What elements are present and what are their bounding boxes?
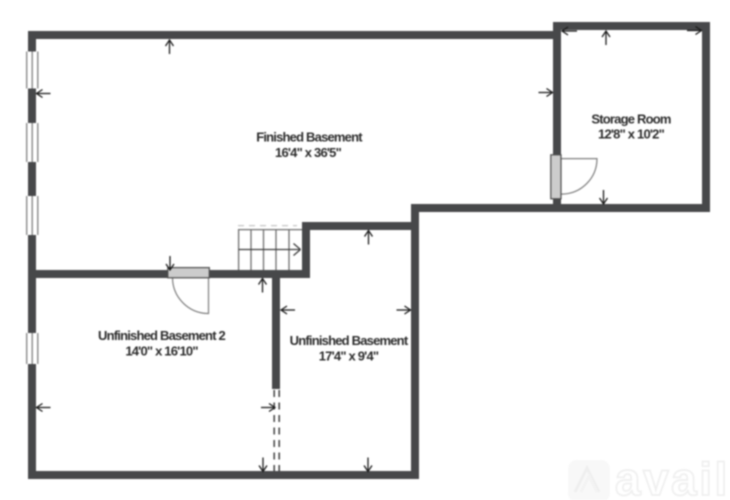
svg-text:avail: avail bbox=[615, 453, 730, 500]
svg-text:16'4" x 36'5": 16'4" x 36'5" bbox=[275, 145, 342, 160]
svg-text:Storage Room: Storage Room bbox=[591, 112, 670, 127]
svg-text:12'8" x 10'2": 12'8" x 10'2" bbox=[598, 127, 665, 142]
svg-text:Unfinished Basement: Unfinished Basement bbox=[290, 333, 409, 348]
svg-text:Unfinished Basement 2: Unfinished Basement 2 bbox=[98, 328, 226, 343]
svg-text:14'0" x 16'10": 14'0" x 16'10" bbox=[125, 344, 198, 359]
svg-text:Finished Basement: Finished Basement bbox=[256, 130, 363, 145]
svg-text:17'4" x 9'4": 17'4" x 9'4" bbox=[319, 349, 379, 364]
